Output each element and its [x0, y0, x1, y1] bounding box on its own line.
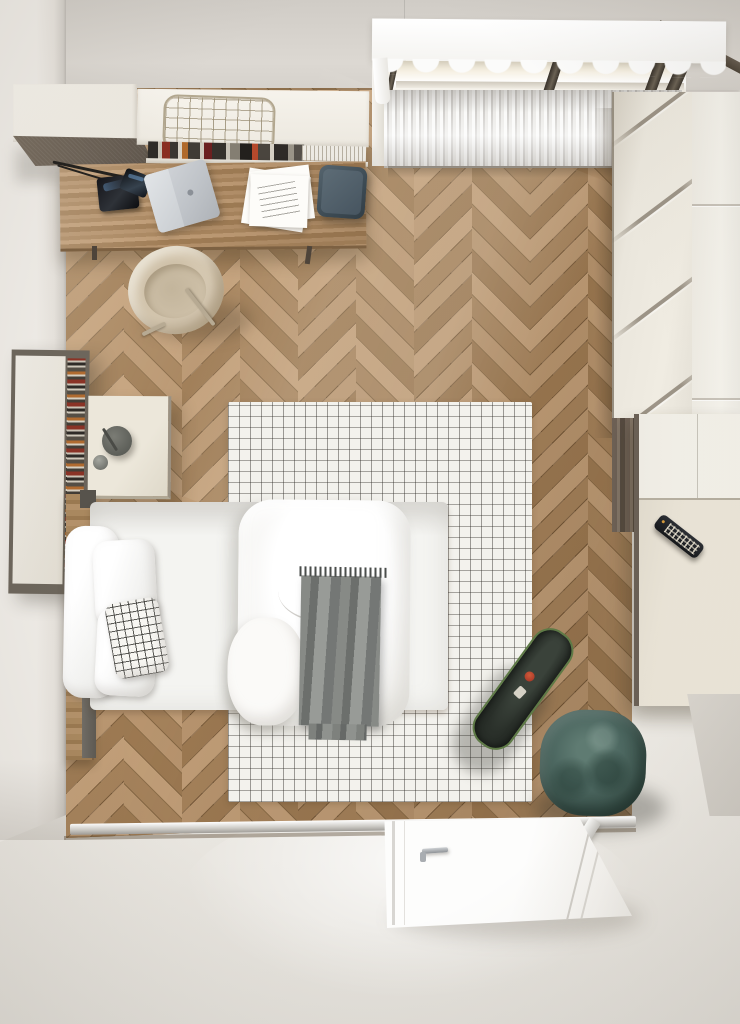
wall-cabinet-top: [13, 84, 137, 142]
wardrobe-seam: [692, 398, 740, 400]
lower-cabinet-seam: [697, 414, 698, 498]
wardrobe-seam: [692, 204, 740, 206]
bedroom-top-view-render: [0, 0, 740, 1024]
shelf-magazines: [302, 145, 366, 161]
wall-cabinet-front: [13, 134, 153, 166]
door-hinge-edge: [392, 821, 395, 925]
desk-stool: [316, 164, 368, 219]
left-wall-shadow: [0, 760, 66, 840]
lower-cabinet: [634, 414, 740, 706]
lower-cabinet-top-section: [639, 414, 740, 500]
door-panel-seam: [404, 821, 405, 925]
sheer-curtain-valance: [372, 18, 726, 63]
wardrobe: [612, 92, 740, 426]
paper-sheet-top: [249, 174, 309, 228]
remote-power-button: [661, 520, 665, 524]
bookshelf-door: [12, 356, 65, 585]
paper-text-lines: [257, 181, 300, 221]
desk-leg: [92, 246, 97, 260]
teal-pouf: [538, 708, 648, 818]
wardrobe-top-face: [692, 92, 740, 426]
fringed-throw-blanket: [299, 575, 382, 726]
bedside-lamp-base: [93, 455, 108, 470]
door-handle-rosette: [420, 852, 426, 862]
wardrobe-front-face: [612, 92, 694, 426]
curtain-edge: [372, 58, 390, 105]
